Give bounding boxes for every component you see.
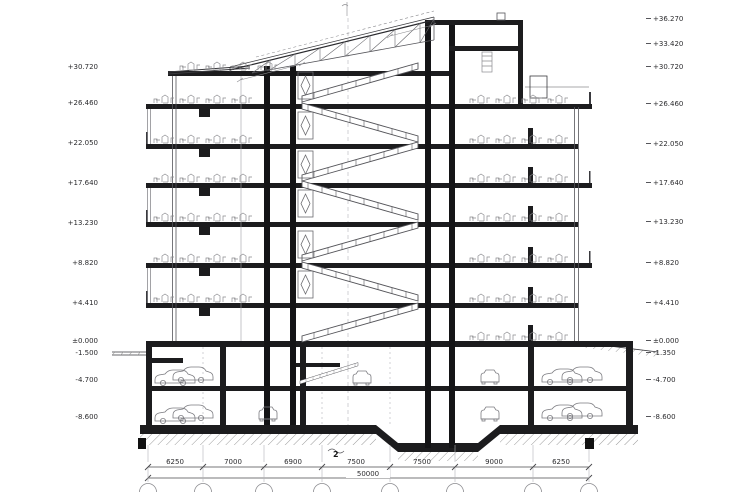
level-label-right: +36.270 xyxy=(646,15,702,23)
dimension-label: 7000 xyxy=(213,458,253,466)
level-label-left: +30.720 xyxy=(46,63,98,71)
level-label-right: +30.720 xyxy=(646,63,702,71)
level-label-left: ±0.000 xyxy=(46,337,98,345)
level-label-right: +13.230 xyxy=(646,218,702,226)
facade-details xyxy=(146,76,591,341)
dimension-label: 7500 xyxy=(336,458,376,466)
level-label-left: +17.640 xyxy=(46,179,98,187)
dimension-label: 6900 xyxy=(273,458,313,466)
level-label-right: ±0.000 xyxy=(646,337,702,345)
level-label-right: +22.050 xyxy=(646,140,702,148)
foundation xyxy=(140,425,638,461)
level-label-right: +26.460 xyxy=(646,100,702,108)
level-label-right: -8.600 xyxy=(646,413,702,421)
level-label-left: +22.050 xyxy=(46,139,98,147)
tower-ladder xyxy=(482,52,492,72)
level-label-right: -1.350 xyxy=(646,349,702,357)
dimension-label: 6250 xyxy=(155,458,195,466)
level-label-right: +33.420 xyxy=(646,40,702,48)
architectural-section-drawing: +30.720 +26.460 +22.050 +17.640 +13.230 … xyxy=(0,0,746,492)
section-marker-label: 2 xyxy=(333,450,339,459)
dimension-label: 9000 xyxy=(474,458,514,466)
axis-bubbles xyxy=(140,484,598,492)
total-dimension-label: 50000 xyxy=(346,470,390,478)
level-label-left: +8.820 xyxy=(46,259,98,267)
dimension-label: 6250 xyxy=(541,458,581,466)
level-label-left: -4.700 xyxy=(46,376,98,384)
level-label-right: +4.410 xyxy=(646,299,702,307)
level-label-left: -1.500 xyxy=(46,349,98,357)
level-label-left: +4.410 xyxy=(46,299,98,307)
level-label-left: +13.230 xyxy=(46,219,98,227)
roof-tower xyxy=(425,13,523,107)
level-label-left: +26.460 xyxy=(46,99,98,107)
level-label-right: +8.820 xyxy=(646,259,702,267)
level-label-left: -8.600 xyxy=(46,413,98,421)
building-section-canvas xyxy=(0,0,746,492)
basement-walls xyxy=(146,341,633,425)
level-label-right: +17.640 xyxy=(646,179,702,187)
dimension-label: 7500 xyxy=(402,458,442,466)
level-label-right: -4.700 xyxy=(646,376,702,384)
